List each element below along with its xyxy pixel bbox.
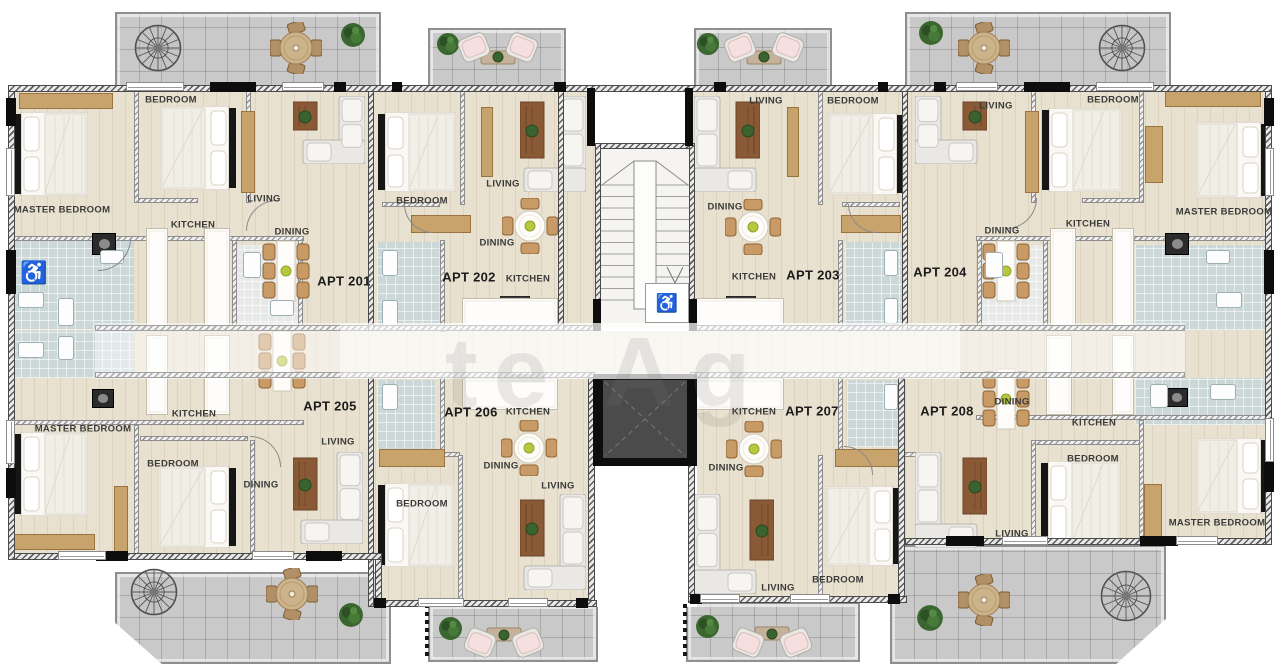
- bed-icon: [14, 112, 88, 196]
- room-label-kitchen: KITCHEN: [732, 272, 776, 283]
- room-label-dining: DINING: [483, 461, 518, 472]
- bath-fixture: [884, 250, 898, 276]
- window: [282, 82, 324, 91]
- room-label-bedroom: BEDROOM: [396, 499, 448, 510]
- structural-column: [946, 536, 984, 546]
- window: [6, 148, 15, 196]
- closet: [482, 108, 492, 176]
- room-label-living: LIVING: [321, 437, 354, 448]
- bed-icon: [1196, 438, 1268, 514]
- interior-wall: [134, 85, 139, 203]
- apartment-id-204: APT 204: [913, 265, 966, 280]
- bed-icon: [160, 106, 236, 190]
- structural-column: [374, 598, 386, 608]
- wall: [898, 378, 905, 603]
- structural-column: [878, 82, 888, 92]
- terrace-sofa-set-icon: [718, 30, 810, 84]
- apartment-id-203: APT 203: [786, 268, 839, 283]
- terrace-sofa-set-icon: [458, 610, 550, 660]
- window: [58, 551, 106, 560]
- interior-wall: [838, 378, 843, 450]
- bath-fixture: [1150, 384, 1168, 408]
- room-label-living: LIVING: [979, 101, 1012, 112]
- room-label-dining: DINING: [479, 238, 514, 249]
- terrace-table-icon: [958, 22, 1010, 74]
- floor-plan: MASTER BEDROOM BEDROOM LIVING KITCHEN DI…: [0, 0, 1280, 668]
- structural-column: [1264, 250, 1274, 294]
- window: [508, 598, 548, 607]
- room-label-kitchen: KITCHEN: [172, 409, 216, 420]
- interior-wall: [1035, 440, 1140, 445]
- room-label-living: LIVING: [486, 179, 519, 190]
- structural-column: [554, 82, 566, 92]
- closet: [788, 108, 798, 176]
- kitchen-counter-icon: [204, 228, 230, 330]
- apartment-id-201: APT 201: [317, 274, 370, 289]
- structural-column: [6, 250, 16, 294]
- room-label-kitchen: KITCHEN: [506, 407, 550, 418]
- elevator: [603, 380, 687, 458]
- closet: [1166, 92, 1260, 106]
- void-space: [593, 466, 697, 607]
- apartment-id-205: APT 205: [303, 399, 356, 414]
- utility-unit: [93, 390, 113, 407]
- structural-column: [1264, 462, 1274, 492]
- room-label-dining: DINING: [984, 226, 1019, 237]
- room-label-master-bedroom: MASTER BEDROOM: [1176, 207, 1273, 218]
- spiral-stair-icon: [1100, 570, 1152, 622]
- structural-column: [306, 551, 342, 561]
- interior-wall: [134, 425, 139, 555]
- sofa-set-icon: [293, 96, 365, 164]
- structural-column: [334, 82, 346, 92]
- void-space: [595, 85, 690, 143]
- room-label-master-bedroom: MASTER BEDROOM: [14, 205, 111, 216]
- room-label-kitchen: KITCHEN: [1066, 219, 1110, 230]
- interior-wall: [140, 436, 248, 441]
- bed-icon: [158, 466, 236, 548]
- bed-icon: [1041, 461, 1121, 545]
- interior-wall: [440, 240, 445, 332]
- wheelchair-icon: ♿: [656, 293, 678, 314]
- structural-column: [934, 82, 946, 92]
- kitchen-counter-icon: [146, 228, 168, 330]
- closet: [12, 535, 94, 549]
- plant-icon: [338, 602, 364, 628]
- bed-icon: [14, 432, 88, 516]
- wall: [902, 85, 908, 331]
- interior-wall: [460, 85, 465, 205]
- room-label-living: LIVING: [761, 583, 794, 594]
- closet: [115, 487, 127, 557]
- room-label-kitchen: KITCHEN: [1072, 418, 1116, 429]
- structural-column: [1024, 82, 1070, 92]
- spiral-stair-icon: [134, 24, 182, 72]
- kitchen-counter-icon: [688, 378, 784, 410]
- kitchen-counter-icon: [1050, 228, 1076, 330]
- utility-unit: [1167, 389, 1187, 406]
- sofa-set-icon: [520, 96, 586, 192]
- wall: [558, 85, 564, 331]
- plant-icon: [918, 20, 944, 46]
- room-label-bedroom: BEDROOM: [812, 575, 864, 586]
- structural-column: [587, 88, 595, 146]
- bath-fixture: [58, 298, 74, 326]
- watermark-band-center: [340, 323, 960, 379]
- interior-wall: [232, 240, 237, 330]
- room-label-living: LIVING: [995, 529, 1028, 540]
- window: [418, 598, 464, 607]
- terrace-table-icon: [266, 568, 318, 620]
- wall: [368, 378, 374, 607]
- terrace-sofa-set-icon: [726, 608, 818, 660]
- window: [1265, 418, 1274, 462]
- structural-column: [1264, 98, 1274, 126]
- apartment-id-202: APT 202: [442, 270, 495, 285]
- structural-column: [888, 594, 900, 604]
- spiral-stair-icon: [130, 568, 178, 616]
- room-label-dining: DINING: [274, 227, 309, 238]
- bath-fixture: [243, 252, 261, 278]
- bath-fixture: [884, 384, 898, 410]
- plant-icon: [916, 604, 944, 632]
- wall: [375, 600, 597, 607]
- sofa-set-icon: [293, 452, 363, 544]
- interior-wall: [1082, 198, 1144, 203]
- window: [1096, 82, 1154, 91]
- wall: [368, 85, 374, 331]
- room-label-bedroom: BEDROOM: [396, 196, 448, 207]
- closet: [242, 112, 254, 192]
- spiral-stair-icon: [1098, 24, 1146, 72]
- bath-fixture: [884, 298, 898, 324]
- room-label-master-bedroom: MASTER BEDROOM: [1169, 518, 1266, 529]
- bed-icon: [378, 112, 456, 192]
- interior-wall: [1139, 420, 1144, 540]
- terrace-sofa-set-icon: [452, 30, 544, 84]
- window: [1265, 148, 1274, 196]
- room-label-living: LIVING: [247, 194, 280, 205]
- sofa-set-icon: [915, 452, 987, 548]
- structural-column: [6, 98, 16, 126]
- closet: [380, 450, 444, 466]
- bath-fixture: [1210, 384, 1236, 400]
- bath-fixture: [1216, 292, 1242, 308]
- balcony-edge-marks: [683, 604, 687, 656]
- room-label-bedroom: BEDROOM: [147, 459, 199, 470]
- wall: [8, 85, 1272, 92]
- closet: [20, 94, 112, 108]
- bath-fixture: [270, 300, 294, 316]
- interior-wall: [1043, 240, 1048, 330]
- bath-fixture: [18, 342, 44, 358]
- bath-fixture: [1206, 250, 1230, 264]
- bathroom: [1135, 245, 1265, 330]
- structural-column: [685, 88, 693, 146]
- bed-icon: [378, 483, 454, 567]
- kitchen-counter-icon: [1112, 228, 1134, 330]
- sofa-set-icon: [915, 96, 987, 164]
- terrace-table-icon: [958, 574, 1010, 626]
- plant-icon: [696, 32, 720, 56]
- bath-fixture: [985, 252, 1003, 278]
- structural-column: [392, 82, 402, 92]
- structural-column: [210, 82, 256, 92]
- structural-column: [593, 458, 697, 466]
- interior-wall: [1031, 440, 1036, 545]
- window: [126, 82, 184, 91]
- bed-icon: [826, 486, 900, 566]
- terrace-table-icon: [270, 22, 322, 74]
- room-label-bedroom: BEDROOM: [145, 95, 197, 106]
- bed-icon: [828, 113, 904, 195]
- window: [1176, 536, 1218, 545]
- interior-wall: [134, 198, 198, 203]
- apartment-id-206: APT 206: [444, 405, 497, 420]
- window: [252, 551, 294, 560]
- room-label-kitchen: KITCHEN: [506, 274, 550, 285]
- room-label-dining: DINING: [243, 480, 278, 491]
- bed-icon: [1042, 108, 1122, 192]
- room-label-kitchen: KITCHEN: [171, 220, 215, 231]
- apartment-id-208: APT 208: [920, 404, 973, 419]
- structural-column: [687, 380, 697, 466]
- room-label-kitchen: KITCHEN: [732, 407, 776, 418]
- sofa-set-icon: [694, 96, 760, 192]
- room-label-bedroom: BEDROOM: [827, 96, 879, 107]
- bath-fixture: [382, 384, 398, 410]
- closet: [1026, 112, 1038, 192]
- accessible-stair-area: ♿: [645, 283, 689, 323]
- structural-column: [593, 380, 603, 466]
- apartment-id-207: APT 207: [785, 404, 838, 419]
- room-label-bedroom: BEDROOM: [1087, 95, 1139, 106]
- room-label-living: LIVING: [749, 96, 782, 107]
- interior-wall: [818, 85, 823, 205]
- apartment-floor: [1185, 331, 1272, 378]
- utility-unit: [1166, 234, 1188, 254]
- balcony-edge-marks: [425, 606, 429, 656]
- dining-table-icon: [262, 238, 310, 304]
- bath-fixture: [18, 292, 44, 308]
- window: [956, 82, 998, 91]
- interior-wall: [1139, 85, 1144, 203]
- window: [790, 594, 830, 603]
- bath-fixture: [382, 250, 398, 276]
- plant-icon: [340, 22, 366, 48]
- window: [6, 420, 15, 464]
- structural-column: [714, 82, 726, 92]
- room-label-dining: DINING: [994, 397, 1029, 408]
- structural-column: [6, 468, 16, 498]
- structural-column: [576, 598, 588, 608]
- bed-icon: [1196, 122, 1268, 198]
- room-label-bedroom: BEDROOM: [1067, 454, 1119, 465]
- room-label-dining: DINING: [708, 463, 743, 474]
- structural-column: [1140, 536, 1178, 546]
- interior-wall: [838, 240, 843, 332]
- room-label-living: LIVING: [541, 481, 574, 492]
- bath-fixture: [58, 336, 74, 360]
- closet: [1146, 127, 1162, 182]
- interior-wall: [458, 455, 463, 603]
- window: [700, 594, 740, 603]
- room-label-dining: DINING: [707, 202, 742, 213]
- room-label-master-bedroom: MASTER BEDROOM: [35, 424, 132, 435]
- wheelchair-icon: ♿: [20, 262, 47, 284]
- plant-icon: [695, 614, 720, 639]
- sofa-set-icon: [694, 494, 774, 594]
- sofa-set-icon: [520, 494, 586, 590]
